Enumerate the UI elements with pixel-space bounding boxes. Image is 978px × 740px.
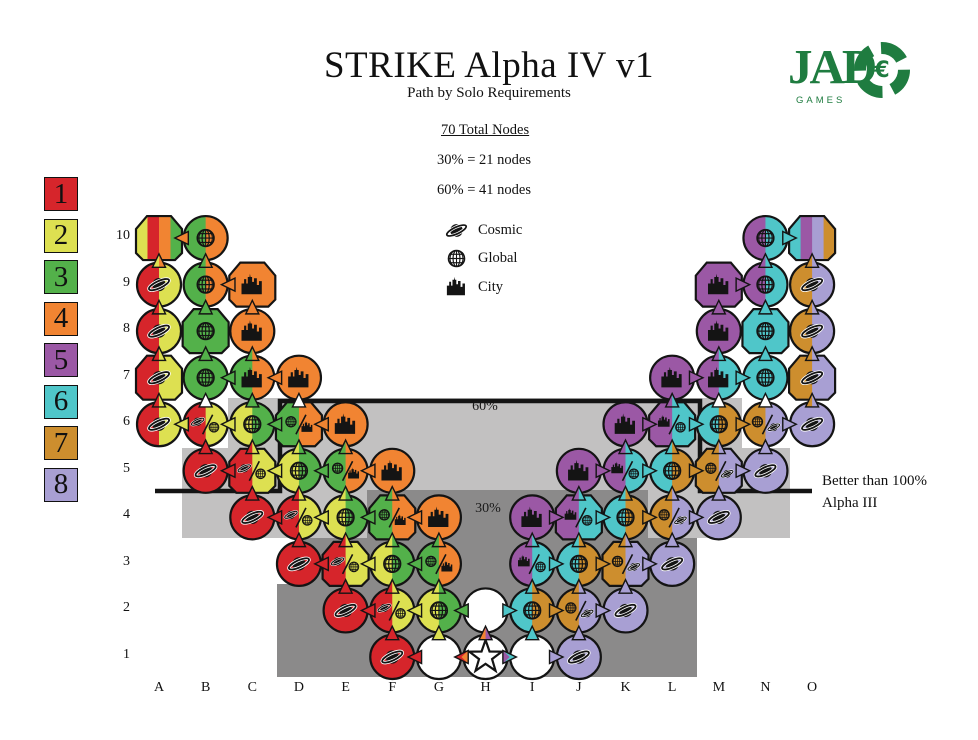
global-icon xyxy=(379,510,389,520)
tier-5-swatch: 5 xyxy=(44,343,78,377)
row-label-4: 4 xyxy=(96,507,130,523)
tier-6-swatch: 6 xyxy=(44,385,78,419)
col-label-O: O xyxy=(797,680,827,696)
annotation-line1: Better than 100% xyxy=(822,470,927,492)
global-icon xyxy=(431,602,448,619)
global-icon xyxy=(629,469,639,479)
col-label-G: G xyxy=(424,680,454,696)
global-icon xyxy=(286,417,296,427)
col-label-L: L xyxy=(657,680,687,696)
logo-subtext: GAMES xyxy=(796,95,845,106)
stat-30pct: 30% = 21 nodes xyxy=(437,152,531,169)
stat-total-nodes: 70 Total Nodes xyxy=(437,122,531,139)
row-label-7: 7 xyxy=(96,368,130,384)
global-icon xyxy=(197,323,214,340)
jade-games-logo: JAD € GAMES xyxy=(788,42,918,104)
global-icon xyxy=(197,276,214,293)
global-icon xyxy=(197,230,214,247)
global-icon xyxy=(426,556,436,566)
tier-3-swatch: 3 xyxy=(44,260,78,294)
global-icon xyxy=(706,463,716,473)
zone-label-60pct: 60% xyxy=(450,399,520,415)
global-icon xyxy=(617,509,634,526)
global-icon xyxy=(291,463,308,480)
global-icon xyxy=(664,463,681,480)
col-label-C: C xyxy=(237,680,267,696)
global-icon xyxy=(659,510,669,520)
row-label-8: 8 xyxy=(96,321,130,337)
icon-legend-item-cosmic: Cosmic xyxy=(444,218,522,242)
row-label-1: 1 xyxy=(96,647,130,663)
icon-legend-label: Global xyxy=(478,250,517,267)
global-icon xyxy=(711,416,728,433)
col-label-M: M xyxy=(704,680,734,696)
icon-legend-item-city: City xyxy=(444,275,522,299)
col-label-H: H xyxy=(471,680,501,696)
global-icon xyxy=(209,422,219,432)
tier-7-swatch: 7 xyxy=(44,426,78,460)
global-icon xyxy=(571,556,588,573)
row-label-3: 3 xyxy=(96,554,130,570)
col-label-I: I xyxy=(517,680,547,696)
global-icon xyxy=(244,416,261,433)
icon-legend-label: Cosmic xyxy=(478,222,522,239)
row-label-9: 9 xyxy=(96,275,130,291)
node-stats: 70 Total Nodes 30% = 21 nodes 60% = 41 n… xyxy=(437,122,531,212)
tier-legend: 12345678 xyxy=(44,177,78,509)
global-icon xyxy=(582,516,592,526)
annotation-line2: Alpha III xyxy=(822,492,927,514)
col-label-A: A xyxy=(144,680,174,696)
row-label-10: 10 xyxy=(96,228,130,244)
global-icon xyxy=(566,603,576,613)
col-label-K: K xyxy=(611,680,641,696)
node-graph xyxy=(0,0,978,740)
icon-legend: Cosmic Global City xyxy=(444,218,522,304)
global-icon xyxy=(302,516,312,526)
cosmic-icon xyxy=(444,218,469,243)
global-icon xyxy=(757,230,774,247)
global-icon xyxy=(757,369,774,386)
global-icon xyxy=(384,556,401,573)
global-icon xyxy=(444,246,469,271)
col-label-D: D xyxy=(284,680,314,696)
city-icon xyxy=(444,275,469,300)
node-H1 xyxy=(464,635,508,679)
global-icon xyxy=(752,417,762,427)
tier-4-swatch: 4 xyxy=(44,302,78,336)
row-label-2: 2 xyxy=(96,600,130,616)
global-icon xyxy=(337,509,354,526)
icon-legend-label: City xyxy=(478,279,503,296)
global-icon xyxy=(349,562,359,572)
global-icon xyxy=(524,602,541,619)
zone-label-30pct: 30% xyxy=(453,501,523,517)
row-label-6: 6 xyxy=(96,414,130,430)
logo-chip-icon: € xyxy=(854,42,910,98)
global-icon xyxy=(332,463,342,473)
global-icon xyxy=(757,323,774,340)
tier-2-swatch: 2 xyxy=(44,219,78,253)
global-icon xyxy=(536,562,546,572)
global-icon xyxy=(757,276,774,293)
annotation-better-than-alpha3: Better than 100% Alpha III xyxy=(822,470,927,514)
global-icon xyxy=(256,469,266,479)
col-label-B: B xyxy=(191,680,221,696)
global-icon xyxy=(676,422,686,432)
tier-8-swatch: 8 xyxy=(44,468,78,502)
global-icon xyxy=(396,609,406,619)
poster: STRIKE Alpha IV v1 Path by Solo Requirem… xyxy=(0,0,978,740)
global-icon xyxy=(612,556,622,566)
col-label-J: J xyxy=(564,680,594,696)
col-label-N: N xyxy=(750,680,780,696)
row-label-5: 5 xyxy=(96,461,130,477)
icon-legend-item-global: Global xyxy=(444,247,522,271)
tier-1-swatch: 1 xyxy=(44,177,78,211)
col-label-E: E xyxy=(331,680,361,696)
col-label-F: F xyxy=(377,680,407,696)
stat-60pct: 60% = 41 nodes xyxy=(437,182,531,199)
logo-e-glyph: € xyxy=(874,58,889,83)
global-icon xyxy=(197,369,214,386)
